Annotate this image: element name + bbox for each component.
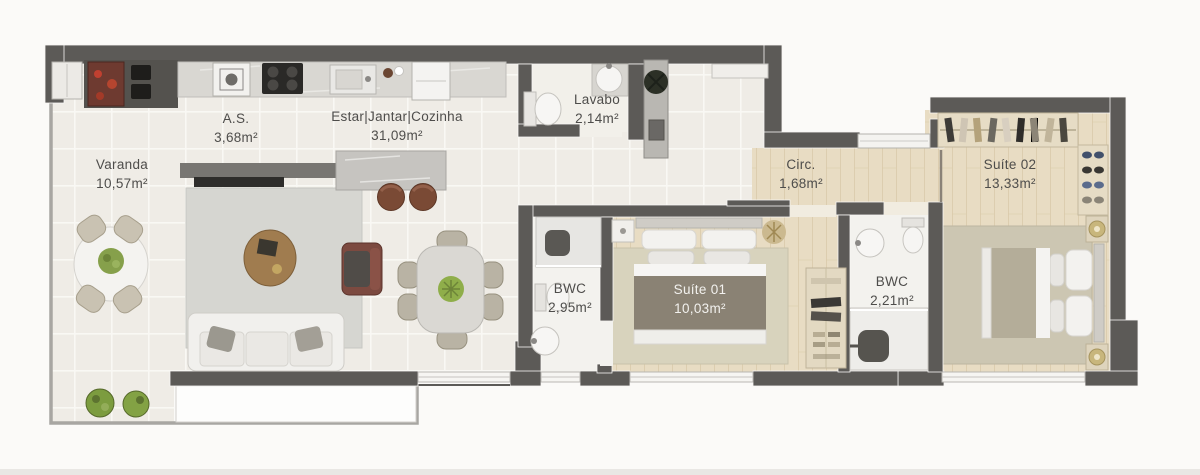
tv-sideboard bbox=[180, 163, 336, 178]
oven-icon bbox=[131, 65, 151, 80]
bwc2-door-opening bbox=[884, 202, 928, 215]
sofa bbox=[188, 313, 344, 371]
bed-sheet bbox=[1036, 248, 1050, 338]
nightstand bbox=[1086, 344, 1108, 370]
armchair bbox=[342, 243, 382, 295]
headboard bbox=[636, 218, 762, 228]
counter-decor bbox=[383, 68, 393, 78]
shower-tray-icon bbox=[545, 230, 570, 256]
floorplan-stage: Varanda 10,57m² A.S. 3,68m² Estar|Jantar… bbox=[0, 0, 1200, 475]
pillow bbox=[704, 251, 750, 265]
potted-plant bbox=[123, 391, 149, 417]
suite01-door-opening bbox=[790, 205, 836, 217]
bed-sheet bbox=[634, 264, 766, 278]
closet-rail bbox=[938, 113, 1078, 147]
headboard bbox=[1094, 244, 1104, 342]
counter-decor bbox=[395, 67, 404, 76]
toilet-icon bbox=[535, 283, 569, 311]
pillow bbox=[1050, 254, 1064, 286]
pillow bbox=[648, 251, 694, 265]
window-strip bbox=[541, 372, 580, 382]
shoe-shelf bbox=[1078, 145, 1108, 215]
window-strip bbox=[942, 372, 1085, 382]
window-strip bbox=[418, 372, 510, 382]
facade-void bbox=[176, 386, 416, 422]
page-shadow-band bbox=[0, 469, 1200, 475]
pillow bbox=[642, 230, 696, 249]
tv-icon bbox=[194, 177, 284, 187]
pillow bbox=[1066, 250, 1092, 290]
console-decor bbox=[649, 120, 664, 140]
wardrobe bbox=[806, 268, 846, 368]
toilet-icon bbox=[902, 218, 924, 253]
lavabo-door-opening bbox=[580, 124, 622, 137]
toilet-icon bbox=[524, 92, 561, 126]
bed-blanket bbox=[634, 276, 766, 330]
pillow bbox=[1050, 300, 1064, 332]
oven-icon bbox=[131, 84, 151, 99]
entry-bench bbox=[712, 64, 768, 78]
bed-foot bbox=[634, 330, 766, 344]
coffee-table bbox=[244, 230, 296, 286]
floorplan-drawing bbox=[0, 0, 1200, 475]
shower-tray-icon bbox=[858, 330, 889, 362]
bed-foot bbox=[982, 248, 991, 338]
pillow bbox=[702, 230, 756, 249]
shower-box bbox=[850, 308, 928, 370]
grill-icon bbox=[88, 62, 124, 106]
table-plant bbox=[98, 248, 124, 274]
bwc1-door-opening bbox=[600, 321, 613, 366]
window-strip bbox=[630, 372, 753, 382]
entry-door-threshold bbox=[858, 134, 930, 148]
potted-plant bbox=[86, 389, 114, 417]
bed-blanket bbox=[990, 248, 1036, 338]
pillow bbox=[1066, 296, 1092, 336]
lavabo-sink-icon bbox=[596, 66, 622, 92]
circ-floor bbox=[752, 148, 940, 207]
hanging-clothes bbox=[944, 118, 1067, 143]
nightstand bbox=[1086, 216, 1108, 242]
cooktop-icon bbox=[262, 63, 303, 94]
